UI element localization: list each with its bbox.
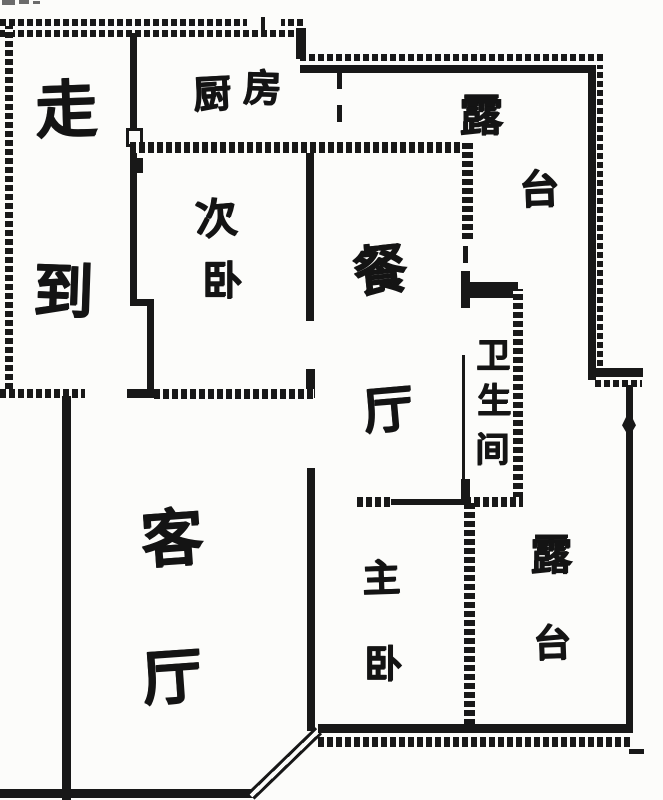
- wall-bathroom-top: [465, 282, 518, 298]
- floor-plan: 走 到 厨 房 露 台 次 卧 餐 厅 卫 生 间 客 厅 主 卧 露 台: [0, 0, 663, 800]
- cutoff-mark: [19, 0, 29, 4]
- cutoff-mark: [2, 0, 15, 5]
- label-terrace-upper-char1: 露: [459, 94, 503, 138]
- label-living-char1: 客: [139, 507, 205, 573]
- label-terrace-upper-char2: 台: [518, 169, 559, 210]
- wall-corridor-kitchen: [130, 33, 137, 141]
- window-mullion: [261, 17, 265, 30]
- wall-end-mark: [629, 749, 644, 754]
- wall-living-right: [307, 468, 315, 731]
- wall-left: [5, 26, 13, 389]
- wall-bottom: [318, 724, 633, 733]
- label-living-char2: 厅: [140, 646, 204, 710]
- label-master-char2: 卧: [364, 646, 402, 684]
- door-line-bathroom: [462, 355, 465, 483]
- wall-right-lower: [626, 385, 633, 728]
- cutoff-mark: [33, 1, 40, 4]
- wall-terrace-top-outer: [300, 54, 603, 61]
- label-bathroom-char2: 生: [477, 385, 511, 419]
- wall-dining-right-dashed: [463, 246, 468, 272]
- wall-bedroom2-left: [130, 153, 137, 305]
- wall-right-step-hatch: [595, 380, 642, 387]
- wall-living-left: [62, 396, 71, 800]
- label-bedroom2-char2: 卧: [202, 261, 242, 301]
- wall-kitchen-bottom: [130, 142, 468, 153]
- label-dining-char1: 餐: [350, 241, 409, 300]
- wall-right-step: [595, 368, 643, 377]
- label-bedroom2-char1: 次: [193, 197, 239, 243]
- wall-living-top: [154, 389, 314, 399]
- wall-bathroom-right: [513, 289, 523, 507]
- wall-terrace-top-inner: [300, 65, 596, 73]
- wall-right-upper-hatch: [597, 65, 603, 375]
- wall-bedroom2-left-lower: [147, 299, 154, 396]
- label-dining-char2: 厅: [361, 383, 415, 437]
- wall-right-upper: [588, 65, 596, 380]
- wall-master-top-hatch: [357, 497, 393, 507]
- wall-diagonal-corner: [248, 727, 323, 799]
- door-marker-right-wall: [622, 411, 636, 437]
- wall-corridor-bottom: [0, 389, 85, 398]
- wall-top-left-inner: [0, 30, 303, 37]
- label-bathroom-char1: 卫: [476, 340, 510, 374]
- label-terrace-lower-char1: 露: [530, 535, 572, 577]
- boundary-kitchen-terrace-dashed: [337, 72, 342, 138]
- wall-master-top: [391, 499, 467, 505]
- wall-living-bottom: [0, 789, 255, 798]
- label-corridor-char2: 到: [32, 261, 94, 323]
- label-kitchen-char1: 厨: [192, 75, 232, 115]
- wall-dining-right: [462, 142, 473, 239]
- label-bathroom-char3: 间: [475, 434, 509, 468]
- wall-bedroom2-right: [306, 153, 314, 321]
- label-terrace-lower-char2: 台: [532, 624, 571, 663]
- label-master-char1: 主: [361, 559, 400, 598]
- wall-terrace-lower-left: [464, 503, 475, 725]
- label-corridor-char1: 走: [34, 79, 98, 143]
- wall-bottom-hatch: [318, 737, 633, 747]
- label-kitchen-char2: 房: [242, 69, 281, 108]
